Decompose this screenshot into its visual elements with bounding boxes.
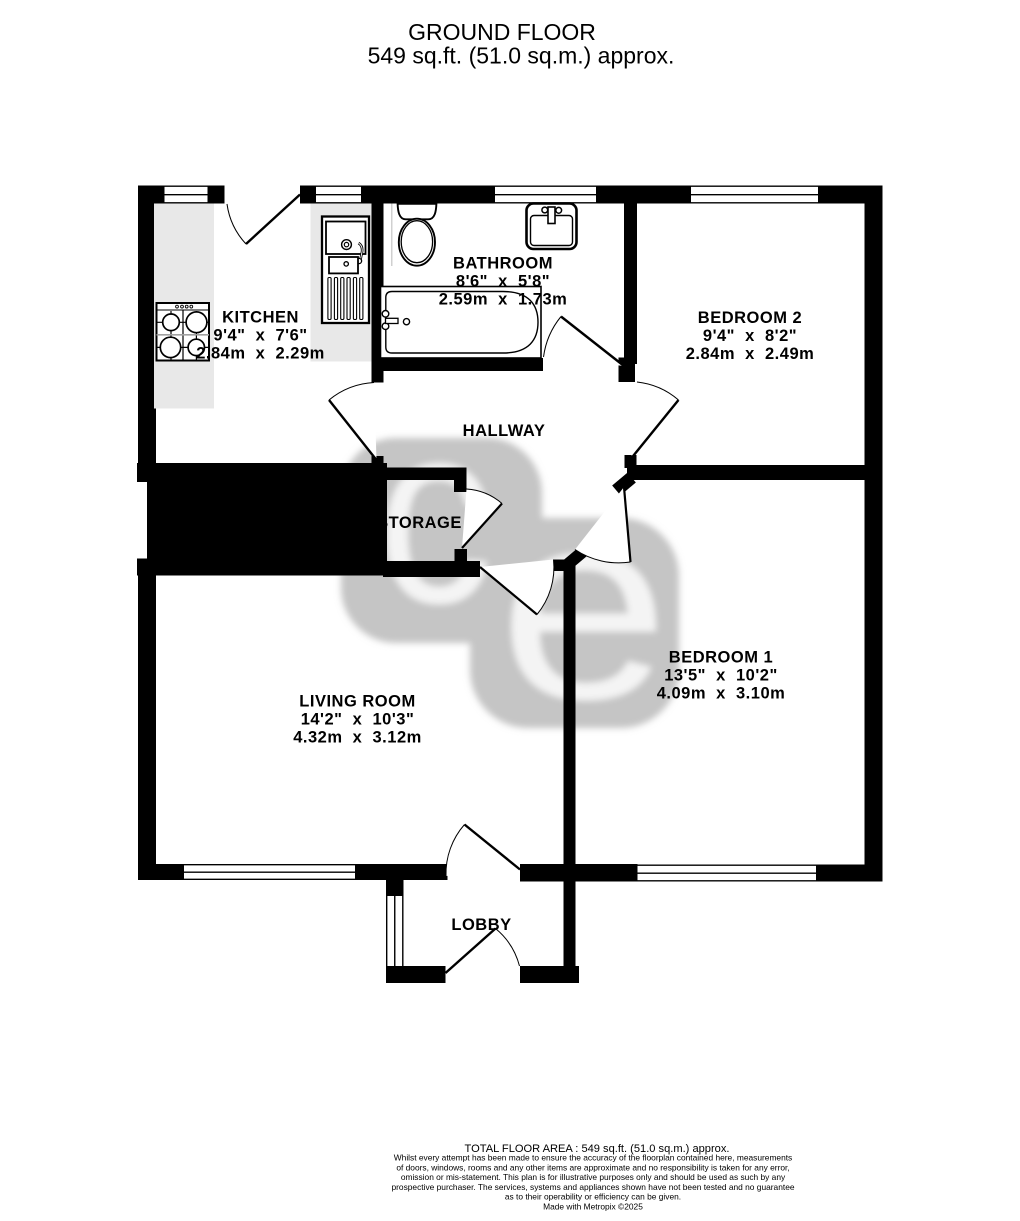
svg-text:omission or mis-statement. Thi: omission or mis-statement. This plan is … (401, 1172, 786, 1182)
svg-text:GROUND FLOOR: GROUND FLOOR (408, 19, 596, 45)
svg-text:prospective purchaser. The ser: prospective purchaser. The services, sys… (391, 1182, 794, 1192)
svg-text:as to their operability or eff: as to their operability or efficiency ca… (505, 1192, 681, 1202)
svg-text:2.84m x 2.49m: 2.84m x 2.49m (686, 345, 815, 363)
svg-text:HALLWAY: HALLWAY (463, 422, 546, 440)
svg-text:2.59m x 1.73m: 2.59m x 1.73m (439, 291, 568, 309)
svg-text:STORAGE: STORAGE (377, 514, 462, 532)
svg-text:8'6" x 5'8": 8'6" x 5'8" (456, 273, 550, 291)
svg-text:LIVING ROOM: LIVING ROOM (299, 693, 415, 711)
svg-text:LOBBY: LOBBY (451, 916, 511, 934)
svg-text:14'2" x 10'3": 14'2" x 10'3" (301, 711, 415, 729)
svg-text:BATHROOM: BATHROOM (453, 255, 553, 273)
svg-text:BEDROOM 2: BEDROOM 2 (698, 309, 802, 327)
svg-text:549 sq.ft. (51.0 sq.m.) approx: 549 sq.ft. (51.0 sq.m.) approx. (368, 43, 675, 69)
svg-text:e: e (498, 455, 669, 756)
svg-text:Made with Metropix ©2025: Made with Metropix ©2025 (543, 1202, 643, 1212)
svg-text:KITCHEN: KITCHEN (222, 309, 299, 327)
svg-text:9'4" x 7'6": 9'4" x 7'6" (213, 327, 307, 345)
svg-text:Whilst every attempt has been: Whilst every attempt has been made to en… (394, 1153, 793, 1163)
svg-text:4.09m x 3.10m: 4.09m x 3.10m (657, 685, 786, 703)
svg-text:of doors, windows, rooms and a: of doors, windows, rooms and any other i… (396, 1162, 789, 1172)
svg-text:4.32m x 3.12m: 4.32m x 3.12m (293, 729, 422, 747)
svg-text:2.84m x 2.29m: 2.84m x 2.29m (196, 345, 325, 363)
svg-text:13'5" x 10'2": 13'5" x 10'2" (664, 667, 778, 685)
svg-text:9'4" x 8'2": 9'4" x 8'2" (703, 327, 797, 345)
svg-text:BEDROOM 1: BEDROOM 1 (669, 649, 773, 667)
